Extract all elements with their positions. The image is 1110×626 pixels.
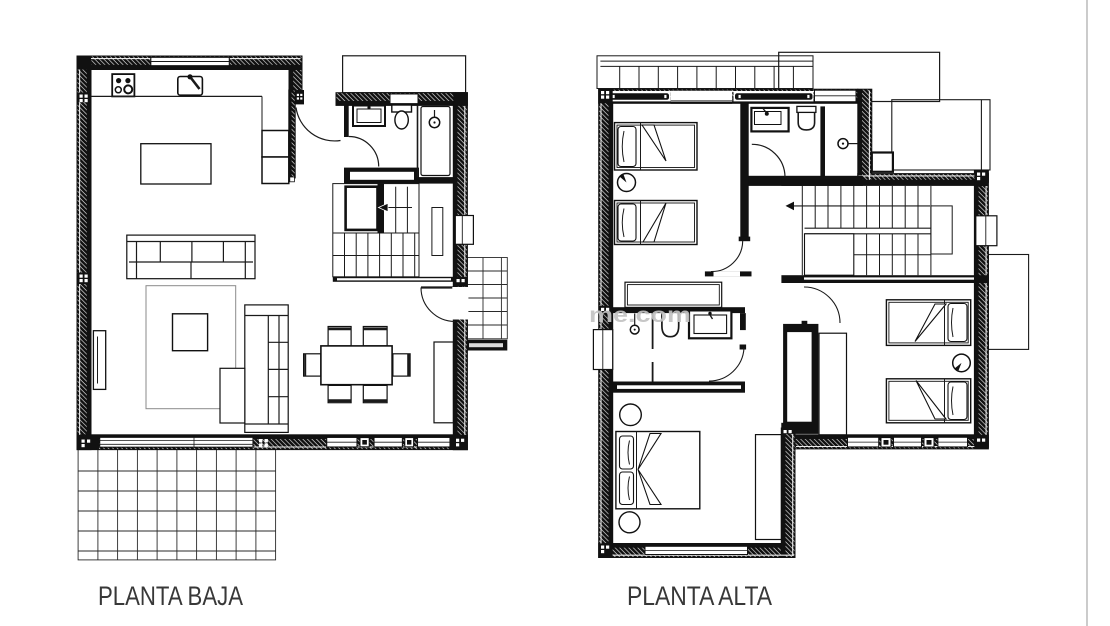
- svg-text:PLANTA ALTA: PLANTA ALTA: [627, 581, 772, 611]
- svg-text:PLANTA BAJA: PLANTA BAJA: [98, 581, 243, 611]
- svg-text:me.com: me.com: [589, 304, 691, 327]
